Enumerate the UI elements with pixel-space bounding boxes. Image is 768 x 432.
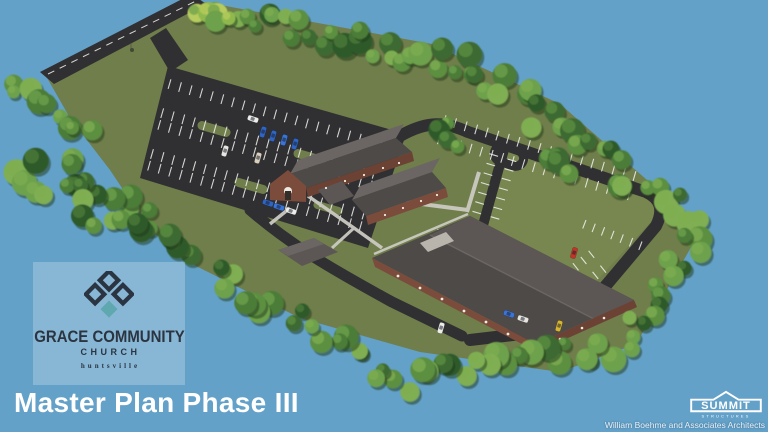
credits-block: SUMMIT STRUCTURES William Boehme and Ass… [605, 390, 765, 430]
church-city-text: huntsville [78, 363, 140, 370]
church-logo-card: GRACE COMMUNITY CHURCH huntsville [33, 262, 185, 385]
architect-credit-text: William Boehme and Associates Architects [605, 420, 765, 430]
builder-name-text: SUMMIT [701, 400, 751, 412]
church-name-text: GRACE COMMUNITY [34, 328, 184, 345]
slide-title: Master Plan Phase III [14, 387, 299, 419]
church-cross-logo-icon [84, 271, 134, 323]
church-word-text: CHURCH [78, 348, 141, 357]
summit-structures-logo: SUMMIT STRUCTURES [688, 390, 764, 419]
builder-tagline-text: STRUCTURES [702, 414, 751, 419]
master-plan-slide: GRACE COMMUNITY CHURCH huntsville Master… [0, 0, 768, 432]
